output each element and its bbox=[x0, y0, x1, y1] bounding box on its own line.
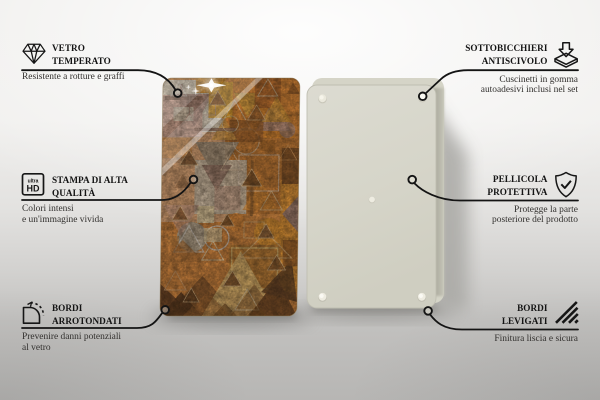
svg-text:HD: HD bbox=[27, 184, 40, 194]
